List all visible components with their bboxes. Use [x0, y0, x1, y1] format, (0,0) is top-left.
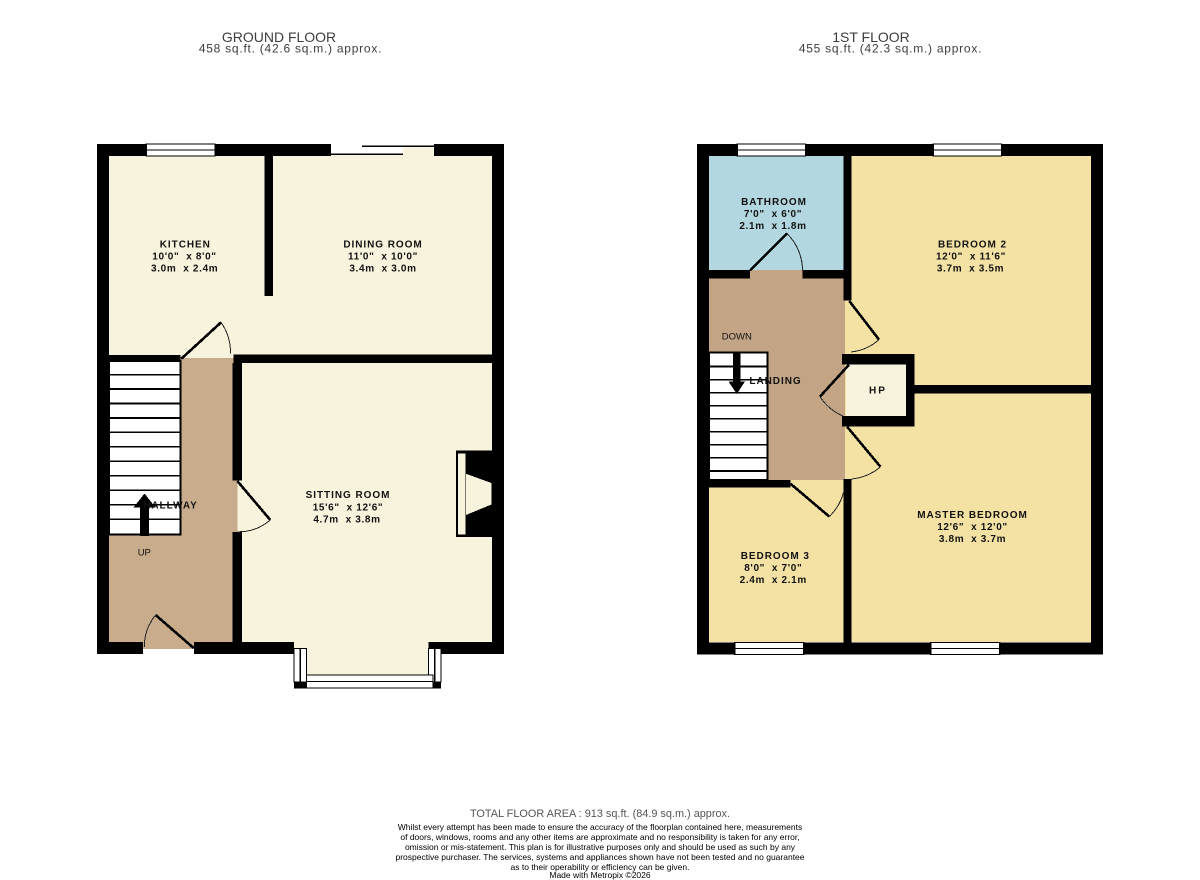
svg-text:455 sq.ft. (42.3 sq.m.) approx: 455 sq.ft. (42.3 sq.m.) approx.	[799, 42, 982, 56]
svg-text:DINING ROOM: DINING ROOM	[343, 240, 422, 251]
svg-text:3.0m x 2.4m: 3.0m x 2.4m	[151, 264, 218, 275]
svg-text:4.7m x 3.8m: 4.7m x 3.8m	[313, 514, 380, 525]
svg-text:12'0" x 11'6": 12'0" x 11'6"	[936, 252, 1006, 263]
svg-text:HALLWAY: HALLWAY	[143, 501, 198, 512]
svg-text:TOTAL FLOOR AREA : 913 sq.ft.: TOTAL FLOOR AREA : 913 sq.ft. (84.9 sq.m…	[470, 808, 730, 820]
svg-text:KITCHEN: KITCHEN	[160, 240, 211, 251]
svg-text:BATHROOM: BATHROOM	[741, 197, 807, 208]
svg-text:10'0" x 8'0": 10'0" x 8'0"	[152, 252, 216, 263]
svg-text:Made with Metropix ©2026: Made with Metropix ©2026	[549, 870, 651, 880]
svg-text:2.1m x 1.8m: 2.1m x 1.8m	[739, 221, 806, 232]
svg-text:Whilst every attempt has been: Whilst every attempt has been made to en…	[398, 822, 802, 832]
svg-text:MASTER BEDROOM: MASTER BEDROOM	[917, 510, 1028, 521]
svg-text:of doors, windows, rooms and a: of doors, windows, rooms and any other i…	[400, 832, 799, 842]
svg-text:3.8m x 3.7m: 3.8m x 3.7m	[939, 534, 1006, 545]
svg-text:prospective purchaser. The ser: prospective purchaser. The services, sys…	[395, 852, 804, 862]
svg-text:SITTING ROOM: SITTING ROOM	[306, 490, 391, 501]
svg-text:BEDROOM 2: BEDROOM 2	[938, 240, 1007, 251]
svg-text:2.4m x 2.1m: 2.4m x 2.1m	[740, 575, 807, 586]
svg-text:11'0" x 10'0": 11'0" x 10'0"	[348, 252, 418, 263]
svg-text:7'0" x 6'0": 7'0" x 6'0"	[744, 209, 802, 220]
svg-text:BEDROOM 3: BEDROOM 3	[741, 551, 810, 562]
svg-text:3.7m x 3.5m: 3.7m x 3.5m	[937, 264, 1004, 275]
svg-text:458 sq.ft. (42.6 sq.m.) approx: 458 sq.ft. (42.6 sq.m.) approx.	[199, 42, 382, 56]
svg-text:12'6" x 12'0": 12'6" x 12'0"	[937, 522, 1008, 533]
svg-text:8'0" x 7'0": 8'0" x 7'0"	[744, 563, 802, 574]
svg-text:15'6" x 12'6": 15'6" x 12'6"	[313, 502, 384, 513]
svg-text:DOWN: DOWN	[722, 331, 752, 342]
svg-text:3.4m x 3.0m: 3.4m x 3.0m	[349, 264, 416, 275]
svg-text:LANDING: LANDING	[749, 376, 801, 387]
svg-text:UP: UP	[138, 548, 151, 559]
svg-text:omission or mis-statement. Thi: omission or mis-statement. This plan is …	[405, 842, 796, 852]
svg-text:HP: HP	[869, 386, 887, 397]
